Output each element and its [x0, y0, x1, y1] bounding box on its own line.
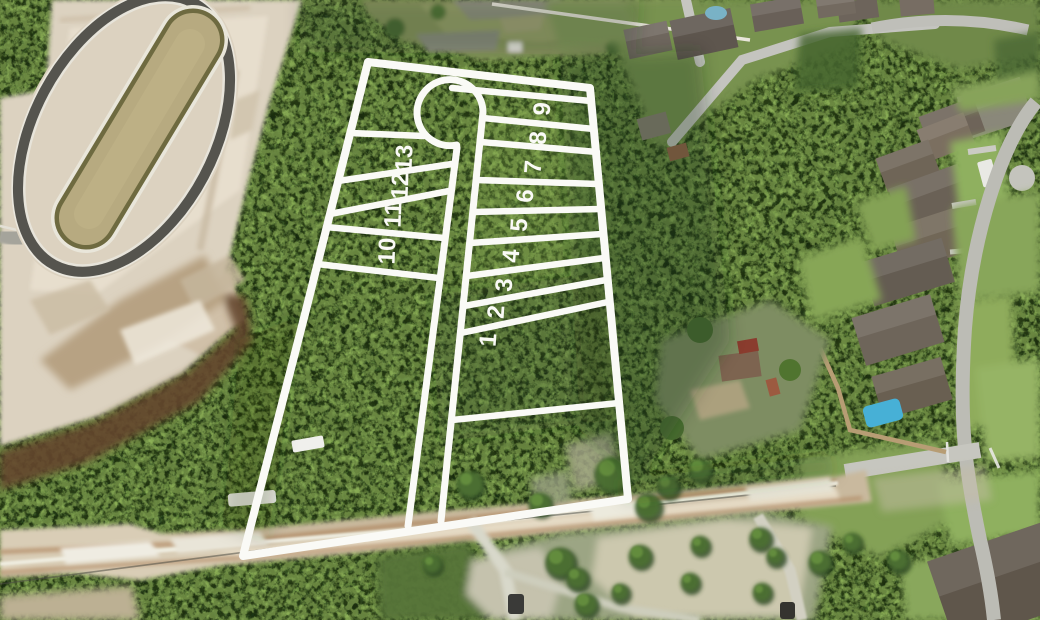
svg-text:4: 4	[498, 248, 526, 264]
svg-text:8: 8	[525, 130, 553, 145]
svg-text:7: 7	[520, 159, 548, 174]
svg-text:6: 6	[512, 188, 540, 203]
svg-text:9: 9	[529, 101, 557, 116]
svg-text:10: 10	[374, 237, 402, 265]
svg-text:13: 13	[391, 144, 419, 172]
svg-text:11: 11	[380, 202, 408, 228]
svg-text:2: 2	[483, 304, 511, 319]
svg-text:3: 3	[491, 277, 519, 292]
svg-text:1: 1	[475, 332, 503, 347]
svg-text:5: 5	[506, 217, 534, 232]
svg-text:12: 12	[387, 172, 415, 200]
